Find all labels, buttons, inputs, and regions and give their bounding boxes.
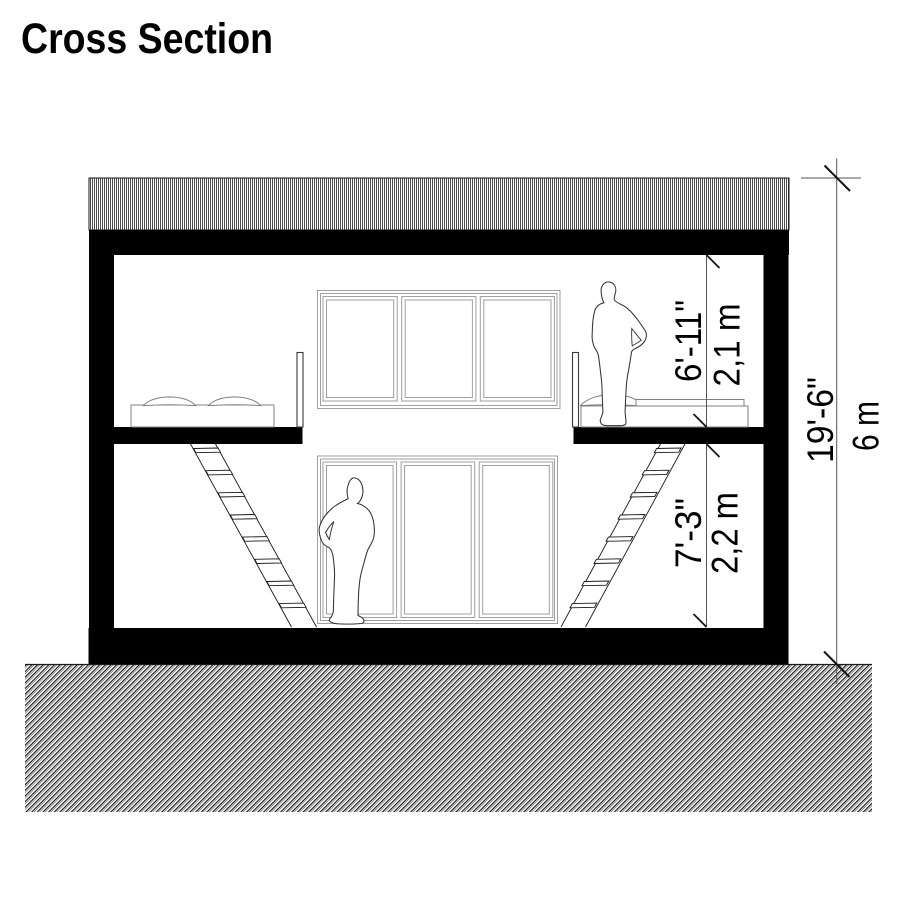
svg-text:19'-6": 19'-6" [800,377,841,463]
svg-text:2,1 m: 2,1 m [707,304,748,387]
svg-text:6'-11": 6'-11" [668,300,709,382]
svg-text:6 m: 6 m [846,401,887,451]
svg-text:2,2 m: 2,2 m [705,492,746,574]
svg-text:Cross Section: Cross Section [21,15,273,63]
svg-text:7'-3": 7'-3" [668,498,709,568]
